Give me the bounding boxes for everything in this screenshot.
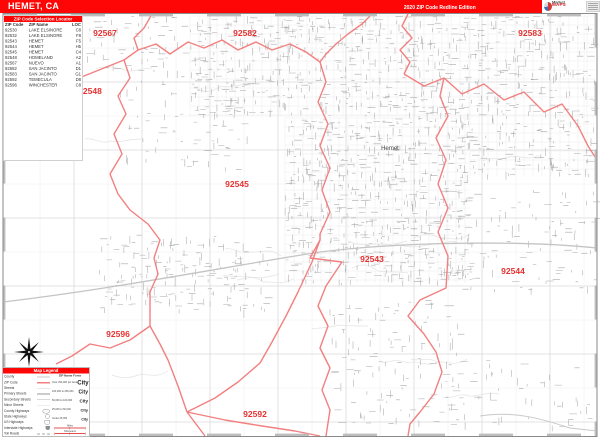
zip-label: 92582	[233, 28, 257, 38]
zip-label: 92592	[243, 409, 267, 419]
font-scale-example: City	[79, 396, 88, 405]
compass-rose-icon	[10, 337, 48, 367]
font-scale-example: City	[77, 378, 88, 387]
zip-index-table: ZIP Code ZIP Name LOC 92530 LAKE ELSINOR…	[4, 22, 82, 88]
font-scale-label: 100,000 to 250,000	[52, 390, 74, 393]
zip-label: 92567	[93, 28, 117, 38]
zip-code-cell: 92596	[4, 83, 28, 89]
font-scale-label: Over 250,000 per Area	[52, 381, 77, 384]
fineprint-box	[586, 1, 600, 12]
font-scale-example: City	[81, 414, 88, 423]
font-scale-label: Under 25,000	[52, 417, 67, 420]
legend-item-label: State Highways	[4, 415, 45, 419]
legend-item-label: Secondary Streets	[4, 398, 37, 402]
scale-bar: Miles	[52, 425, 88, 429]
header-bar: HEMET, CA 2020 ZIP Code Redline Edition	[0, 0, 600, 13]
scale-bar-line	[55, 428, 86, 429]
brand-name-bottom: MAPS	[552, 4, 587, 7]
logo-circle-icon	[544, 2, 552, 11]
scale-bar-line	[55, 433, 86, 434]
brand-logo: Market MAPS	[542, 0, 600, 13]
font-scale-example: City	[79, 387, 88, 396]
font-scale-example: City	[80, 405, 88, 414]
legend-symbol	[37, 433, 50, 434]
scale-bar: Kilometers	[52, 430, 88, 434]
legend-symbol	[37, 376, 50, 377]
loc-cell: C8	[69, 83, 82, 89]
zip-label: 92583	[518, 28, 542, 38]
map-canvas: Hemet92567925829258392548925459254392544…	[0, 0, 600, 439]
legend-item-label: ZIP Code	[4, 381, 37, 385]
font-scale-label: 25,000 to 50,000	[52, 408, 71, 411]
city-label: Hemet	[381, 146, 399, 152]
zip-label: 92544	[501, 266, 525, 276]
zip-label: 92543	[360, 254, 384, 264]
zip-name-cell: WINCHESTER	[28, 83, 69, 89]
legend-symbol	[37, 388, 50, 389]
legend-symbol	[37, 382, 50, 384]
legend-panel: Map Legend County ZIP Code	[2, 367, 90, 437]
edition-label: 2020 ZIP Code Redline Edition	[404, 5, 476, 11]
legend-item-label: Streets	[4, 386, 37, 390]
legend-symbol	[37, 399, 50, 400]
font-scale-row: 100,000 to 250,000 City	[52, 387, 88, 396]
legend-symbol	[45, 414, 50, 419]
legend-item-label: Minor Streets	[4, 404, 37, 408]
font-scale-row: 50,000 to 100,000 City	[52, 396, 88, 405]
font-scale-row: Over 250,000 per Area City	[52, 378, 88, 387]
font-scale-label: 50,000 to 100,000	[52, 399, 72, 402]
legend-item-label: County Highways	[4, 409, 43, 413]
brand-name: Market MAPS	[552, 1, 587, 12]
legend-symbol	[37, 405, 50, 406]
legend-symbol	[45, 420, 51, 425]
zip-label: 92545	[225, 179, 249, 189]
page: Hemet92567925829258392548925459254392544…	[0, 0, 600, 439]
zip-label: 92596	[106, 329, 130, 339]
font-scale-row: 25,000 to 50,000 City	[52, 405, 88, 414]
legend-symbol	[37, 393, 50, 394]
legend-item-label: US Highways	[4, 421, 45, 425]
legend-item-label: Primary Streets	[4, 392, 37, 396]
legend-symbol	[43, 409, 51, 414]
font-scale-row: Under 25,000 City	[52, 414, 88, 423]
legend-item-label: Interstate Highways	[4, 426, 46, 430]
zip-index-row: 92596 WINCHESTER C8	[4, 83, 82, 89]
legend-symbol	[46, 426, 51, 430]
zip-index-panel: ZIP Code Selection Locator ZIP Code ZIP …	[3, 15, 83, 161]
legend-item-label: Toll Roads	[4, 432, 37, 436]
page-title: HEMET, CA	[8, 1, 59, 11]
legend-item-label: County	[4, 375, 37, 379]
legend-item: Toll Roads	[4, 431, 50, 437]
